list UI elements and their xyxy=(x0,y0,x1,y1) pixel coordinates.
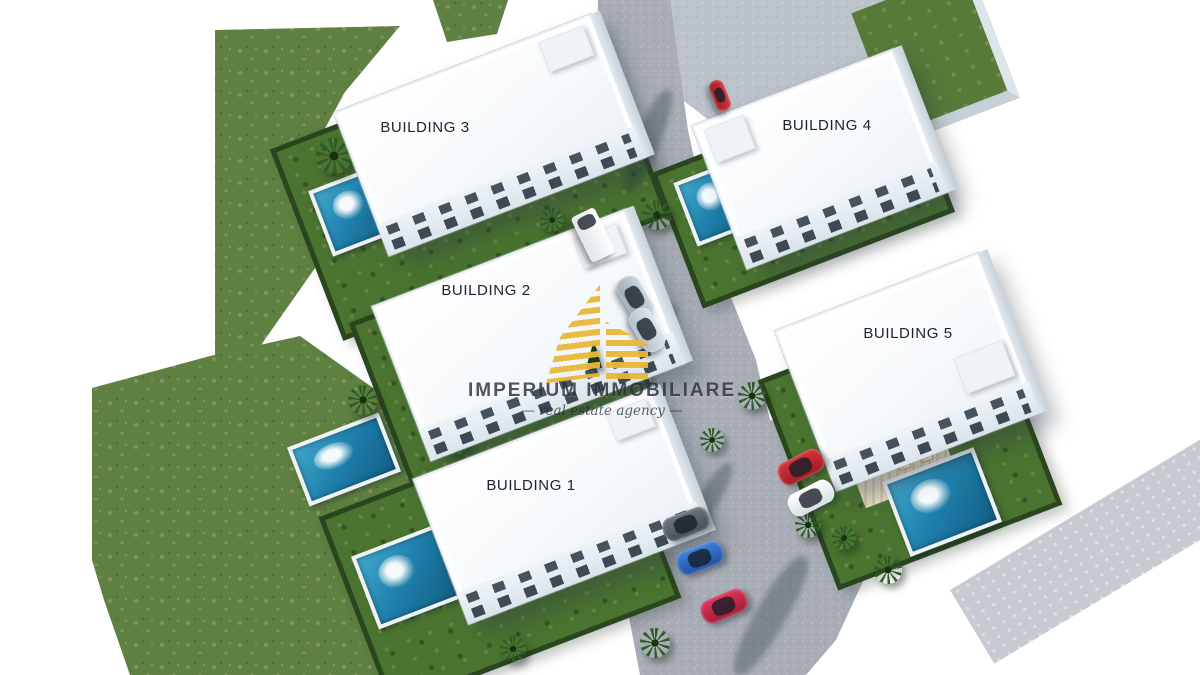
gold-building-bars-icon xyxy=(468,286,736,380)
lawn-patch-top xyxy=(433,0,508,42)
rooftop-structure xyxy=(953,340,1015,394)
palm-tree xyxy=(832,526,856,550)
palm-tree xyxy=(540,208,564,232)
rooftop-structure xyxy=(538,25,594,72)
palm-tree xyxy=(500,636,526,662)
logo-tall-tower xyxy=(546,285,600,384)
building-5-label: BUILDING 5 xyxy=(833,325,983,342)
building-4-label: BUILDING 4 xyxy=(752,117,902,134)
palm-tree xyxy=(348,385,378,415)
aerial-render-canvas: BUILDING 3 BUILDING 4 BUILDING 2 BUILDIN… xyxy=(0,0,1200,675)
building-1-label: BUILDING 1 xyxy=(456,477,606,494)
palm-tree xyxy=(700,428,724,452)
palm-tree xyxy=(640,628,670,658)
building-3-label: BUILDING 3 xyxy=(350,119,500,136)
palm-tree xyxy=(874,556,902,584)
watermark: IMPERIUM IMMOBILIARE — real estate agenc… xyxy=(468,286,736,419)
logo-short-tower xyxy=(606,318,648,380)
watermark-brand-name: IMPERIUM IMMOBILIARE xyxy=(468,380,736,402)
palm-tree xyxy=(642,200,672,230)
rooftop-structure xyxy=(704,115,756,164)
palm-tree xyxy=(738,382,766,410)
watermark-tagline: — real estate agency — xyxy=(468,403,736,419)
